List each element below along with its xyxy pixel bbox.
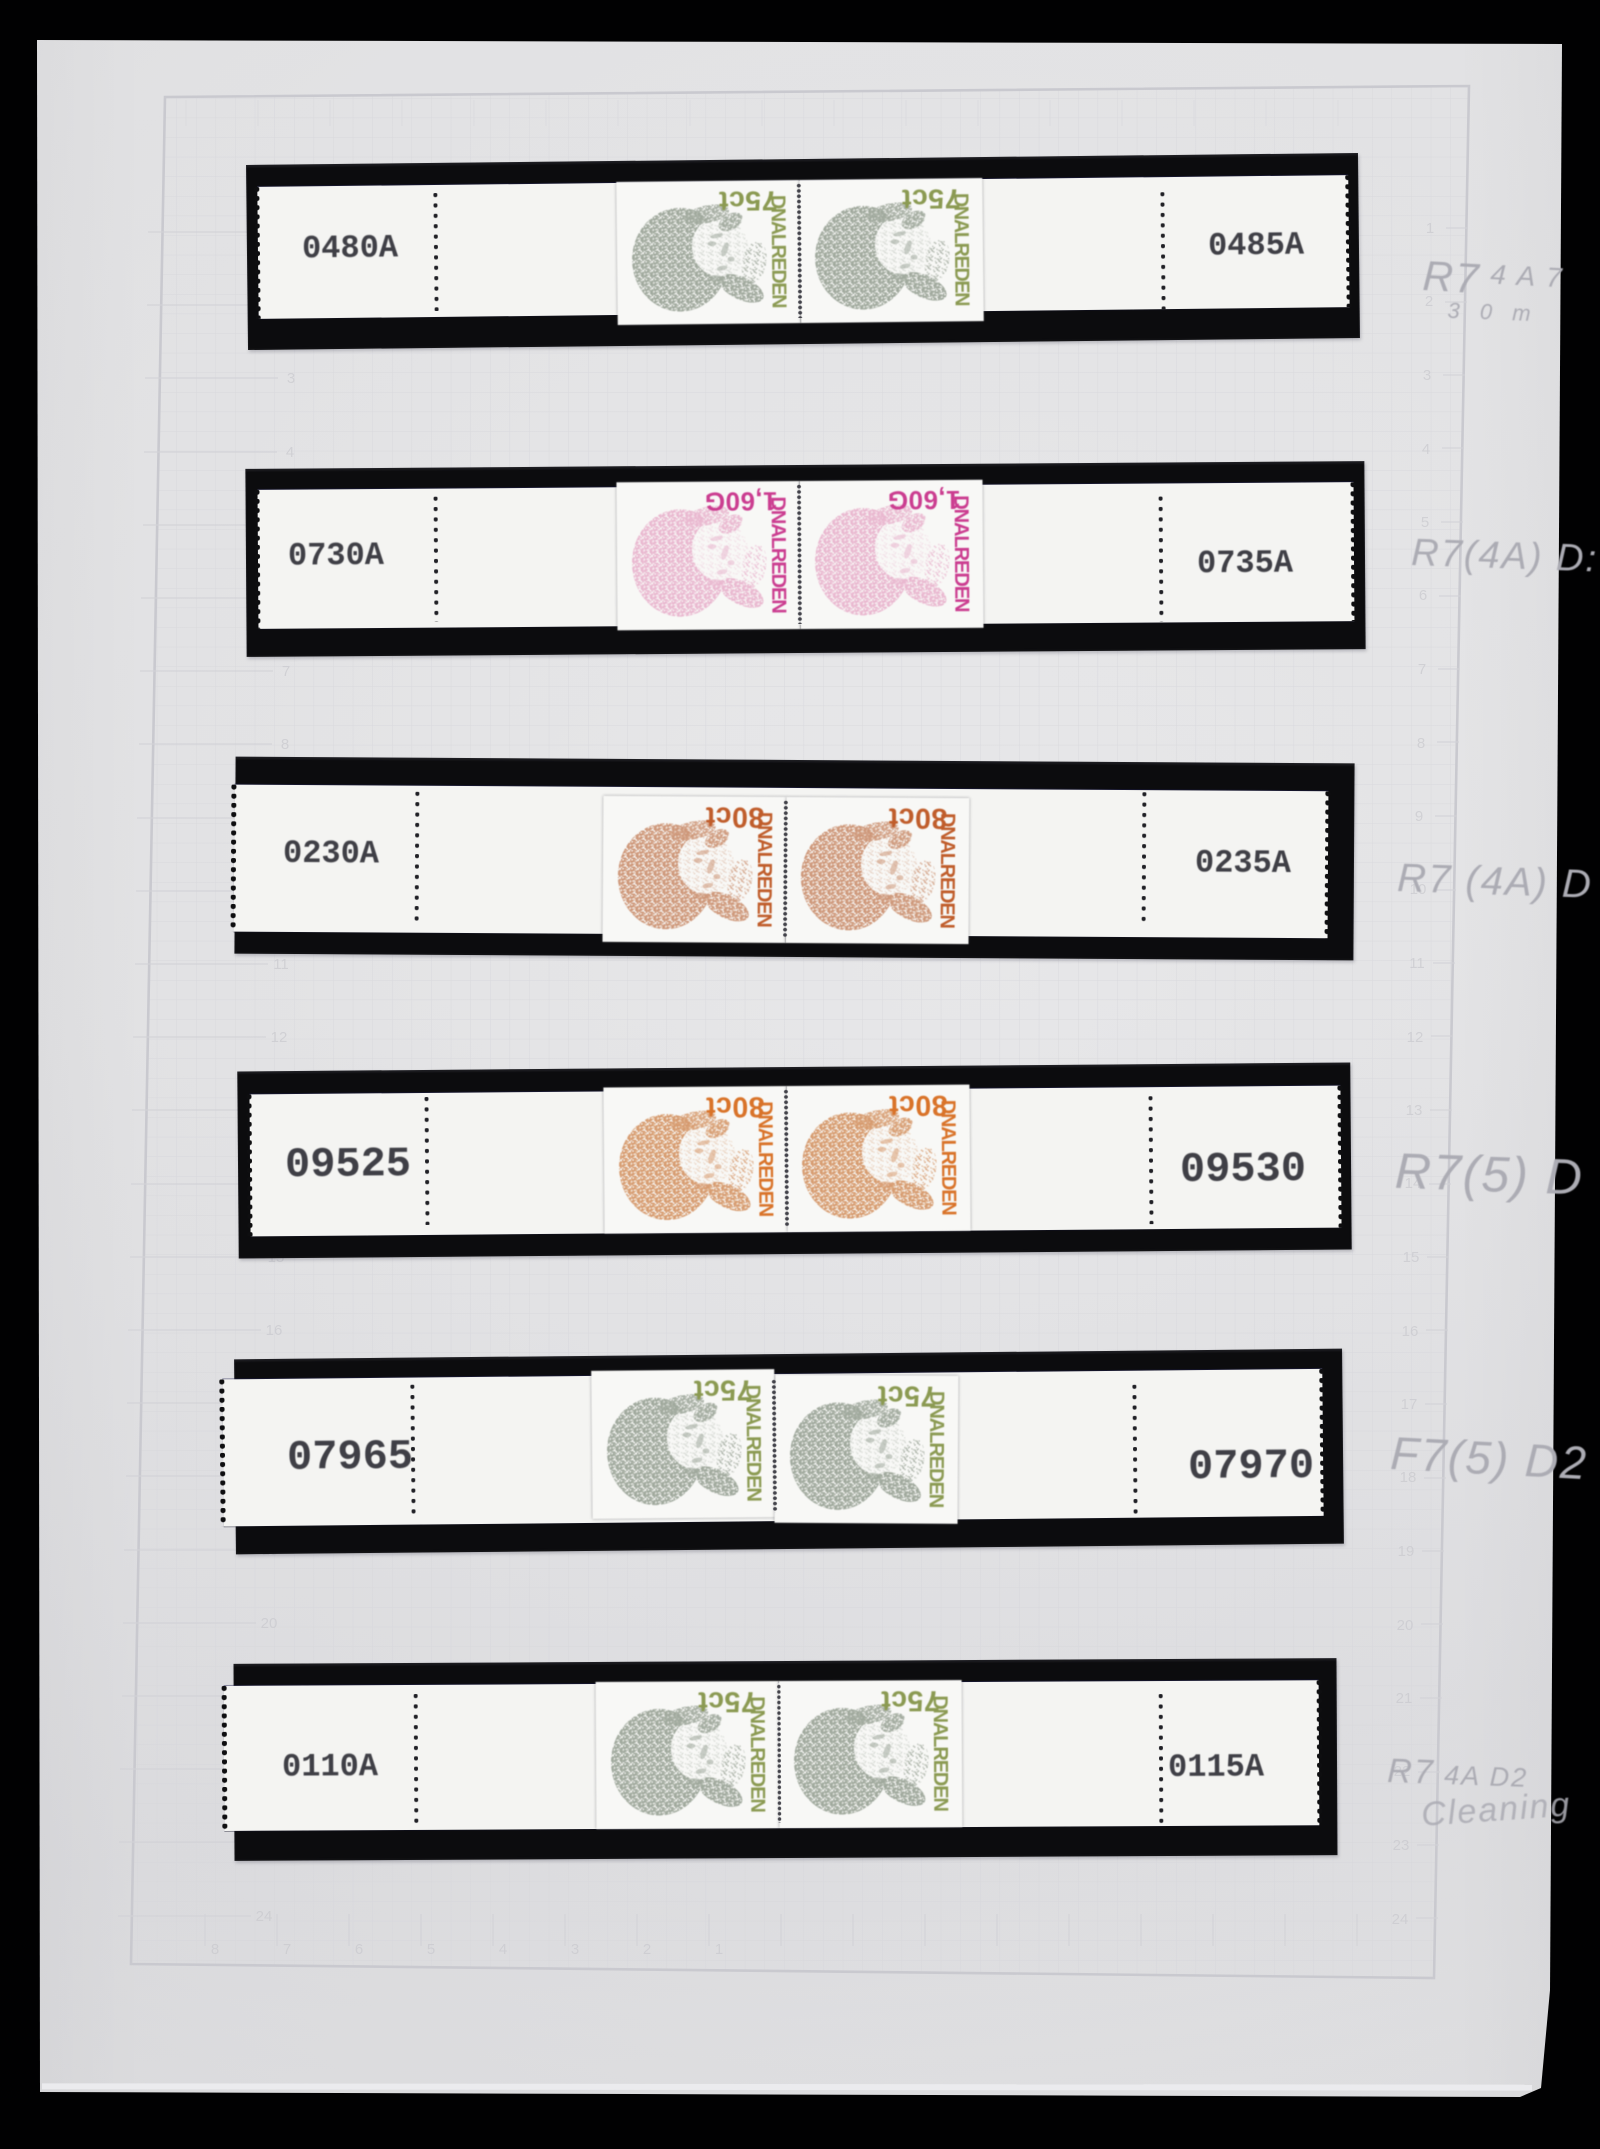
svg-text:9: 9 bbox=[1415, 808, 1423, 825]
svg-text:20: 20 bbox=[261, 1615, 278, 1632]
svg-text:7: 7 bbox=[1418, 661, 1426, 678]
svg-text:12: 12 bbox=[271, 1029, 288, 1046]
svg-text:7: 7 bbox=[283, 1941, 291, 1958]
svg-text:23: 23 bbox=[1393, 1837, 1410, 1854]
svg-text:19: 19 bbox=[1398, 1543, 1415, 1560]
svg-text:DNALREDEN: DNALREDEN bbox=[924, 1391, 947, 1508]
svg-text:15: 15 bbox=[1403, 1249, 1420, 1266]
svg-text:DNALREDEN: DNALREDEN bbox=[936, 1099, 959, 1215]
svg-text:12: 12 bbox=[1407, 1029, 1424, 1046]
svg-text:11: 11 bbox=[1409, 955, 1425, 972]
svg-text:16: 16 bbox=[1402, 1323, 1419, 1340]
svg-text:13: 13 bbox=[1406, 1102, 1423, 1119]
svg-text:6: 6 bbox=[1419, 587, 1427, 604]
svg-text:1: 1 bbox=[1426, 220, 1434, 237]
svg-text:1: 1 bbox=[715, 1941, 723, 1958]
svg-text:17: 17 bbox=[1401, 1396, 1418, 1413]
svg-text:3: 3 bbox=[287, 370, 295, 387]
svg-text:DNALREDEN: DNALREDEN bbox=[741, 1385, 764, 1502]
svg-text:DNALREDEN: DNALREDEN bbox=[746, 1696, 769, 1812]
svg-text:8: 8 bbox=[1417, 735, 1425, 752]
svg-text:4: 4 bbox=[499, 1941, 507, 1958]
svg-text:8: 8 bbox=[281, 736, 289, 753]
svg-text:11: 11 bbox=[273, 956, 289, 973]
svg-text:5: 5 bbox=[427, 1941, 435, 1958]
svg-text:3: 3 bbox=[1423, 367, 1431, 384]
svg-text:20: 20 bbox=[1397, 1617, 1414, 1634]
svg-text:24: 24 bbox=[1392, 1911, 1409, 1928]
svg-text:DNALREDEN: DNALREDEN bbox=[935, 812, 958, 928]
svg-text:DNALREDEN: DNALREDEN bbox=[929, 1695, 952, 1811]
svg-text:DNALREDEN: DNALREDEN bbox=[753, 1101, 776, 1217]
svg-text:6: 6 bbox=[355, 1941, 363, 1958]
svg-text:DNALREDEN: DNALREDEN bbox=[949, 495, 972, 612]
svg-text:DNALREDEN: DNALREDEN bbox=[766, 195, 789, 308]
svg-text:4: 4 bbox=[1422, 441, 1430, 458]
svg-text:24: 24 bbox=[256, 1908, 273, 1925]
svg-text:16: 16 bbox=[266, 1322, 283, 1339]
svg-text:DNALREDEN: DNALREDEN bbox=[766, 496, 789, 613]
svg-text:5: 5 bbox=[1421, 514, 1429, 531]
svg-text:3: 3 bbox=[571, 1941, 579, 1958]
svg-text:DNALREDEN: DNALREDEN bbox=[752, 811, 775, 927]
svg-text:8: 8 bbox=[211, 1941, 219, 1958]
svg-text:DNALREDEN: DNALREDEN bbox=[949, 193, 972, 306]
svg-text:21: 21 bbox=[1396, 1690, 1413, 1707]
svg-text:7: 7 bbox=[282, 663, 290, 680]
svg-text:4: 4 bbox=[286, 444, 294, 461]
svg-text:2: 2 bbox=[643, 1941, 651, 1958]
